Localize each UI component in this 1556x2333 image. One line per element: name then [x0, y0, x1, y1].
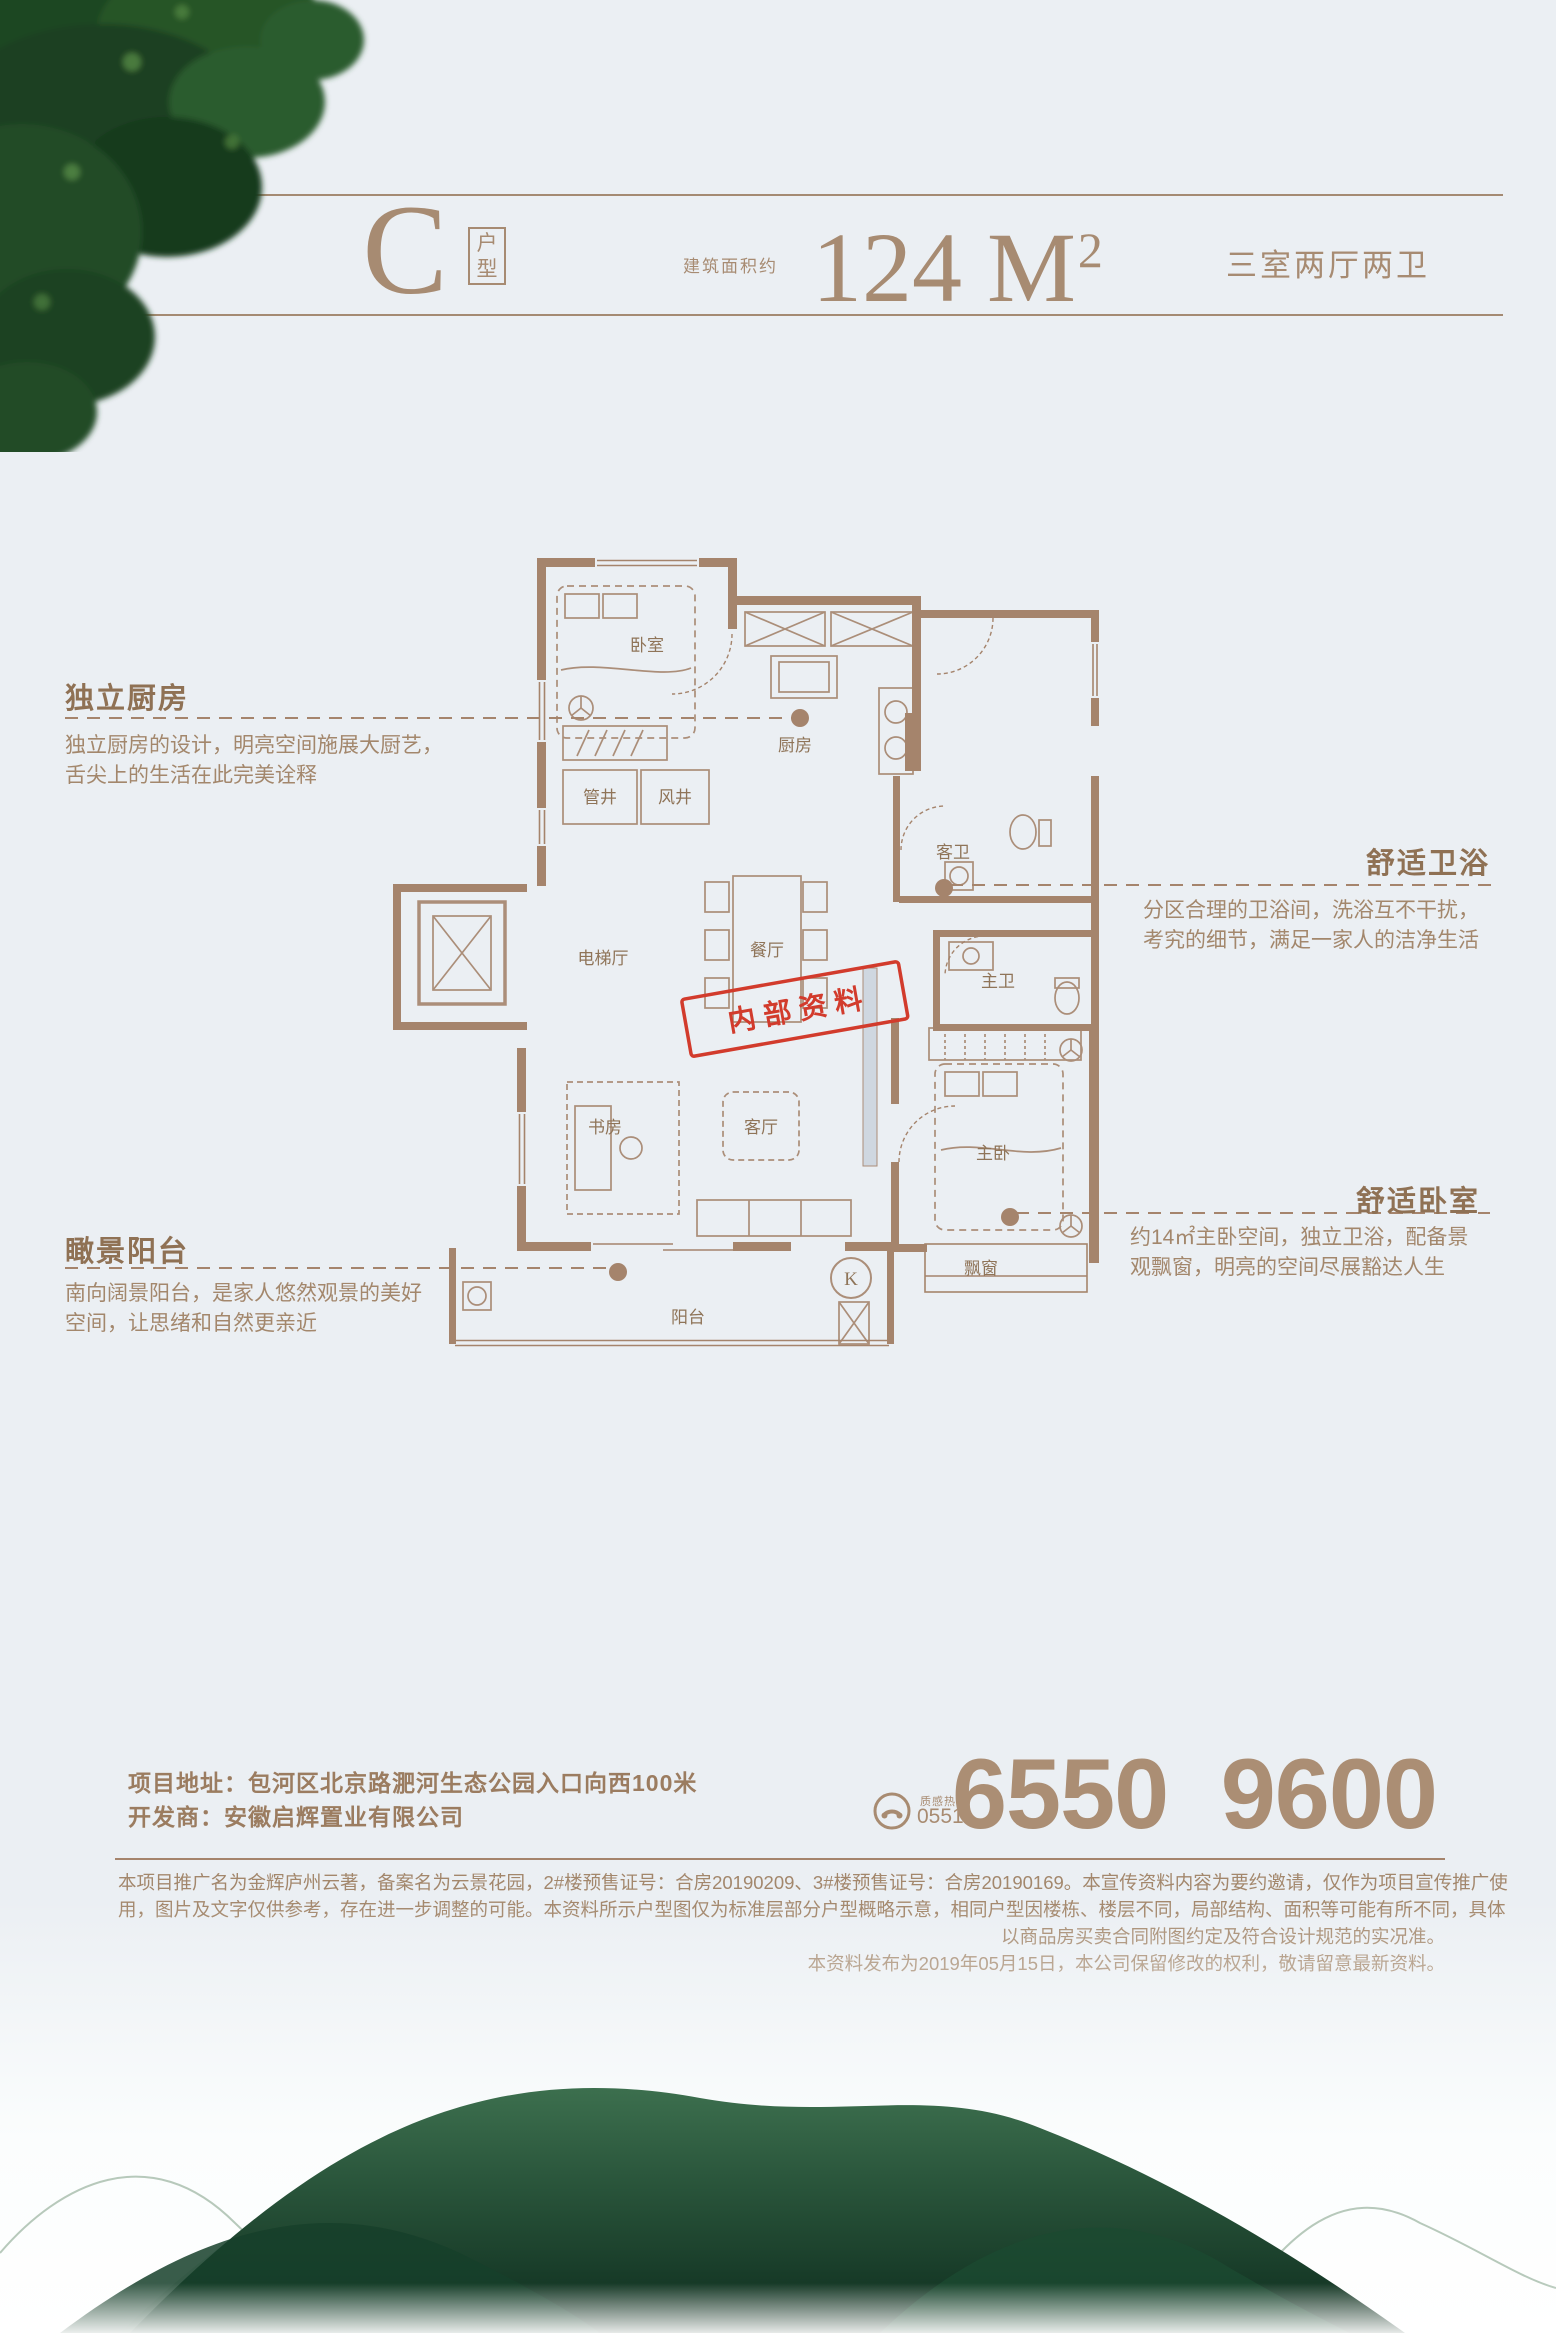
legal-line-1: 本项目推广名为金辉庐州云著，备案名为云景花园，2#楼预售证号：合房2019020…: [118, 1869, 1445, 1896]
hotline-phone-number: 6550 9600: [952, 1746, 1437, 1841]
developer-line: 开发商：安徽启辉置业有限公司: [128, 1798, 464, 1832]
annotation-bedroom-line1: 约14㎡主卧空间，独立卫浴，配备景: [1130, 1223, 1468, 1253]
door-mark-k: K: [844, 1269, 858, 1290]
room-label-elevator-hall: 电梯厅: [578, 949, 629, 968]
annotation-bath-title: 舒适卫浴: [1100, 840, 1490, 882]
annotation-bath-line1: 分区合理的卫浴间，洗浴互不干扰，: [1143, 896, 1479, 926]
project-address-label: 项目地址：: [128, 1770, 248, 1796]
room-label-air-shaft: 风井: [658, 788, 692, 807]
fog-overlay: [0, 2283, 1556, 2333]
project-address-line: 项目地址：包河区北京路淝河生态公园入口向西100米: [128, 1764, 697, 1798]
annotation-kitchen-title: 独立厨房: [65, 675, 189, 717]
room-labels: 卧室 厨房 管井 风井 电梯厅 餐厅 客卫 主卫 书房 客厅 主卧 飘窗 阳台 …: [578, 636, 1016, 1327]
room-label-pipe-shaft: 管井: [583, 788, 617, 807]
room-label-dining: 餐厅: [750, 941, 784, 960]
unit-type-label-box: 户型: [468, 227, 506, 285]
floorplan: 卧室 厨房 管井 风井 电梯厅 餐厅 客卫 主卫 书房 客厅 主卧 飘窗 阳台 …: [281, 550, 1141, 1400]
project-address-value: 包河区北京路淝河生态公园入口向西100米: [248, 1770, 697, 1796]
area-number: 124 M: [812, 212, 1076, 323]
annotation-bedroom-line2: 观飘窗，明亮的空间尽展豁达人生: [1130, 1253, 1468, 1283]
room-label-kitchen: 厨房: [778, 736, 812, 755]
annotation-bath-body: 分区合理的卫浴间，洗浴互不干扰， 考究的细节，满足一家人的洁净生活: [1143, 896, 1479, 956]
area-superscript: 2: [1078, 222, 1103, 278]
room-label-living: 客厅: [744, 1118, 778, 1137]
legal-divider: [115, 1858, 1445, 1860]
annotation-bedroom-title: 舒适卧室: [1100, 1178, 1480, 1220]
developer-label: 开发商：: [128, 1804, 224, 1830]
annotation-balcony-title: 瞰景阳台: [65, 1228, 189, 1270]
room-label-study: 书房: [588, 1118, 622, 1137]
area-prefix: 建筑面积约: [683, 252, 778, 277]
area-value: 124 M2: [812, 204, 1103, 314]
phone-icon: [872, 1791, 912, 1831]
tree-foliage: [0, 0, 364, 452]
room-layout-text: 三室两厅两卫: [1226, 240, 1430, 285]
room-label-balcony: 阳台: [671, 1308, 705, 1327]
mountain-forest-image: [0, 1988, 1556, 2333]
annotation-bath-line2: 考究的细节，满足一家人的洁净生活: [1143, 926, 1479, 956]
annotation-bedroom-body: 约14㎡主卧空间，独立卫浴，配备景 观飘窗，明亮的空间尽展豁达人生: [1130, 1223, 1468, 1283]
developer-value: 安徽启辉置业有限公司: [224, 1804, 464, 1830]
room-label-master-bath: 主卫: [981, 972, 1015, 991]
room-label-guest-bath: 客卫: [936, 843, 970, 862]
tree-canopy-image: [0, 0, 402, 452]
room-label-bay-window: 飘窗: [964, 1259, 998, 1278]
room-label-master-bedroom: 主卧: [976, 1144, 1010, 1163]
brochure-page: C 户型 建筑面积约 124 M2 三室两厅两卫 独立厨房 独立厨房的设计，明亮…: [0, 0, 1556, 2333]
room-label-bedroom2: 卧室: [630, 636, 664, 655]
